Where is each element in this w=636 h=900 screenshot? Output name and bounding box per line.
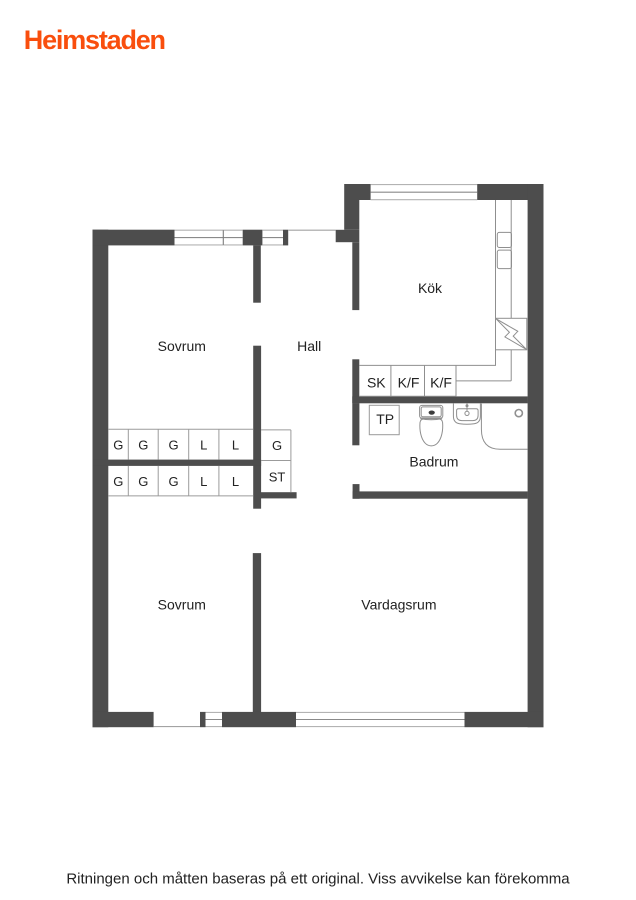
svg-text:L: L	[232, 474, 239, 489]
svg-text:G: G	[113, 474, 123, 489]
svg-text:L: L	[200, 474, 207, 489]
svg-text:Sovrum: Sovrum	[158, 338, 206, 354]
svg-text:G: G	[168, 437, 178, 452]
svg-text:G: G	[138, 474, 148, 489]
svg-text:ST: ST	[269, 469, 286, 484]
svg-text:SK: SK	[367, 374, 386, 390]
svg-text:G: G	[113, 437, 123, 452]
svg-text:K/F: K/F	[430, 374, 452, 390]
svg-text:L: L	[200, 437, 207, 452]
svg-text:Badrum: Badrum	[409, 454, 458, 470]
svg-text:Vardagsrum: Vardagsrum	[361, 596, 436, 612]
svg-text:K/F: K/F	[398, 374, 420, 390]
svg-text:G: G	[138, 437, 148, 452]
svg-text:Heimstaden: Heimstaden	[24, 25, 165, 55]
svg-text:L: L	[232, 437, 239, 452]
svg-text:Kök: Kök	[418, 280, 443, 296]
svg-text:TP: TP	[376, 411, 394, 427]
svg-text:G: G	[272, 438, 282, 453]
svg-text:Sovrum: Sovrum	[158, 596, 206, 612]
svg-text:G: G	[168, 474, 178, 489]
svg-text:Ritningen och måtten baseras p: Ritningen och måtten baseras på ett orig…	[66, 870, 570, 887]
svg-text:Hall: Hall	[297, 338, 321, 354]
